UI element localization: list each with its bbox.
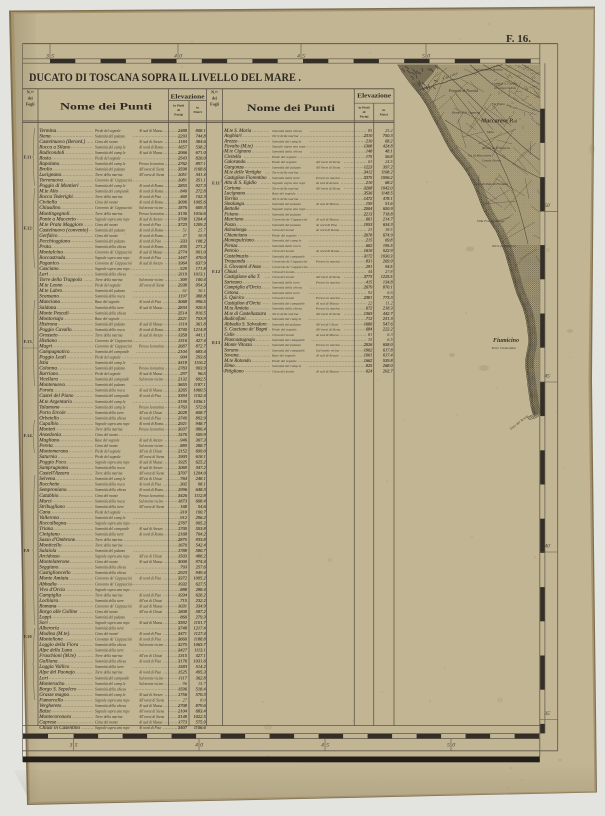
svg-text:628.2: 628.2 — [196, 592, 207, 597]
svg-text:Sommità della torre: Sommità della torre — [95, 411, 124, 415]
svg-text:271.2: 271.2 — [196, 244, 207, 249]
svg-text:3037: 3037 — [178, 426, 188, 431]
svg-text:2774: 2774 — [178, 250, 188, 255]
svg-text:Metri: Metri — [194, 110, 202, 114]
svg-text:3068: 3068 — [178, 299, 188, 304]
svg-text:1060.5: 1060.5 — [193, 388, 206, 393]
svg-text:Cima del monte: Cima del monte — [95, 223, 118, 227]
svg-text:469: 469 — [180, 194, 188, 199]
svg-text:Al sud di Massa: Al sud di Massa — [315, 369, 339, 373]
svg-text:Sul monte vicino: Sul monte vicino — [139, 676, 163, 680]
svg-text:4: 4 — [297, 54, 300, 60]
svg-text:Sommità del camp.le: Sommità del camp.le — [95, 145, 126, 149]
svg-text:Elevazione: Elevazione — [357, 94, 391, 100]
svg-text:Pozzo: Pozzo — [223, 223, 236, 228]
svg-text:F.11: F.11 — [24, 155, 33, 160]
svg-text:Segnale sopra una rupe: Segnale sopra una rupe — [95, 461, 130, 465]
svg-text:1525: 1525 — [178, 670, 188, 675]
svg-text:Cima del monte: Cima del monte — [272, 228, 295, 232]
svg-text:1102.4: 1102.4 — [194, 393, 207, 398]
svg-text:570.3: 570.3 — [196, 692, 207, 697]
svg-text:3598: 3598 — [178, 167, 188, 172]
svg-text:Convento de' Cappuccini: Convento de' Cappuccini — [95, 262, 132, 266]
svg-text:Cima del monte: Cima del monte — [95, 234, 118, 238]
svg-text:F.13: F.13 — [212, 340, 221, 345]
svg-text:108.2: 108.2 — [196, 238, 207, 243]
svg-text:Torre della marina: Torre della marina — [95, 195, 123, 199]
svg-text:All'est di Chiusi: All'est di Chiusi — [138, 599, 162, 603]
svg-text:Sommità del palazzo: Sommità del palazzo — [272, 322, 301, 326]
svg-text:Convento de' Cappuccini: Convento de' Cappuccini — [95, 604, 132, 608]
svg-text:514.2: 514.2 — [196, 664, 207, 669]
svg-text:222.2: 222.2 — [383, 327, 394, 332]
svg-text:750.3: 750.3 — [383, 133, 393, 138]
svg-text:3000: 3000 — [178, 559, 188, 564]
svg-text:Pitigliano: Pitigliano — [223, 369, 244, 374]
svg-text:927.3: 927.3 — [196, 183, 207, 188]
svg-text:Al nord di Roma: Al nord di Roma — [138, 228, 163, 232]
svg-text:Al nord di Pisa: Al nord di Pisa — [138, 223, 161, 227]
svg-text:2488: 2488 — [178, 128, 188, 133]
svg-text:835: 835 — [180, 244, 188, 249]
svg-text:Trequanda: Trequanda — [224, 260, 246, 265]
svg-text:61: 61 — [183, 288, 188, 293]
svg-text:986.4: 986.4 — [196, 426, 207, 431]
svg-text:Al nord di Pisa: Al nord di Pisa — [138, 239, 161, 243]
svg-text:Segnale sopra una rupe: Segnale sopra una rupe — [95, 422, 130, 426]
svg-text:2762: 2762 — [178, 161, 188, 166]
svg-text:1873: 1873 — [178, 498, 188, 503]
svg-text:1204.4: 1204.4 — [193, 216, 206, 221]
svg-text:Sommità del camp.le: Sommità del camp.le — [95, 693, 126, 697]
svg-text:Torre di Palidoro: Torre di Palidoro — [492, 244, 516, 248]
svg-text:Sommità del camp.le: Sommità del camp.le — [272, 139, 302, 143]
svg-text:All'ovest di Siena: All'ovest di Siena — [315, 312, 341, 316]
svg-text:948.7: 948.7 — [196, 421, 207, 426]
svg-text:Al sud di Massa: Al sud di Massa — [315, 333, 339, 337]
svg-text:Piede del segnale: Piede del segnale — [271, 233, 297, 237]
svg-text:Torre della marina: Torre della marina — [95, 593, 123, 597]
svg-text:5: 5 — [447, 743, 450, 749]
svg-text:Tenuta di Primavera: Tenuta di Primavera — [482, 146, 510, 150]
svg-text:Torre Clementina: Torre Clementina — [492, 346, 517, 350]
svg-text:Sommità del palazzo: Sommità del palazzo — [95, 383, 125, 387]
svg-text:Segnale sopra una rupe: Segnale sopra una rupe — [95, 709, 130, 713]
svg-text:Al nord di Pisa: Al nord di Pisa — [138, 671, 161, 675]
svg-text:171.8: 171.8 — [196, 266, 207, 271]
svg-text:Sommità del palazzo: Sommità del palazzo — [95, 322, 125, 326]
svg-text:Sul monte vicino: Sul monte vicino — [139, 278, 163, 282]
svg-text:580.7: 580.7 — [196, 548, 207, 553]
svg-text:495.3: 495.3 — [196, 670, 207, 675]
svg-text:Piede del segnale: Piede del segnale — [271, 160, 297, 164]
svg-text:442.7: 442.7 — [383, 311, 394, 316]
svg-text:351.1: 351.1 — [196, 178, 206, 183]
svg-text:2066: 2066 — [178, 150, 188, 155]
svg-text:Torre della marina: Torre della marina — [272, 312, 299, 316]
svg-text:Sommità del palazzo: Sommità del palazzo — [95, 367, 125, 371]
svg-text:S. Casciano de' Bagni: S. Casciano de' Bagni — [224, 328, 268, 333]
svg-text:553.8: 553.8 — [196, 526, 207, 531]
svg-text:Civitella: Civitella — [224, 155, 241, 160]
svg-text:100.4: 100.4 — [196, 277, 207, 282]
svg-text:M.te Rotondo: M.te Rotondo — [223, 359, 251, 364]
svg-text:Al sud di Massa: Al sud di Massa — [138, 461, 163, 465]
svg-text:Sommità del palazzo: Sommità del palazzo — [95, 239, 125, 243]
svg-text:Al nord di Pisa: Al nord di Pisa — [138, 394, 161, 398]
svg-text:Sommità del camp.le: Sommità del camp.le — [95, 477, 126, 481]
svg-text:F.9: F.9 — [24, 548, 31, 553]
svg-text:933.8: 933.8 — [196, 537, 207, 542]
svg-text:96: 96 — [183, 681, 188, 686]
svg-text:Al nord di Pisa: Al nord di Pisa — [138, 483, 161, 487]
svg-text:Al nord di Roma: Al nord di Roma — [138, 184, 163, 188]
svg-text:All'ovest di Siena: All'ovest di Siena — [315, 160, 341, 164]
svg-text:F.13: F.13 — [24, 339, 33, 344]
svg-text:Via Piana: Via Piana — [492, 102, 505, 106]
svg-text:Sommità del palazzo: Sommità del palazzo — [272, 343, 301, 347]
svg-text:441.1: 441.1 — [196, 332, 206, 337]
svg-text:Al nord di Roma: Al nord di Roma — [138, 145, 163, 149]
svg-text:All'ovest di Siena: All'ovest di Siena — [315, 275, 341, 279]
svg-text:All'est di Chiusi: All'est di Chiusi — [138, 450, 162, 454]
svg-text:Presso la marina: Presso la marina — [138, 405, 164, 409]
svg-text:3412: 3412 — [364, 170, 373, 175]
svg-text:Cima del monte: Cima del monte — [95, 610, 118, 614]
svg-text:2543: 2543 — [178, 156, 188, 161]
svg-text:Cima del monte: Cima del monte — [95, 444, 118, 448]
svg-text:1503: 1503 — [178, 554, 188, 559]
svg-text:Sommità della torre: Sommità della torre — [95, 627, 124, 631]
svg-text:1108.2: 1108.2 — [381, 170, 393, 175]
svg-text:Segnale sopra una rupe: Segnale sopra una rupe — [95, 267, 130, 271]
svg-text:Sul monte vicino: Sul monte vicino — [139, 206, 163, 210]
svg-text:2152: 2152 — [178, 449, 188, 454]
svg-text:Al sud di Massa: Al sud di Massa — [138, 621, 163, 625]
svg-text:572.6: 572.6 — [196, 404, 207, 409]
svg-text:2783: 2783 — [178, 366, 188, 371]
svg-text:Segnale sopra una rupe: Segnale sopra una rupe — [272, 207, 306, 211]
svg-text:671.0: 671.0 — [196, 150, 207, 155]
svg-text:1358: 1358 — [178, 332, 188, 337]
svg-text:1570: 1570 — [178, 432, 188, 437]
svg-text:1788: 1788 — [178, 548, 188, 553]
svg-text:946: 946 — [180, 438, 188, 443]
svg-text:Sommità della torre: Sommità della torre — [272, 176, 300, 180]
svg-text:All'est di Chiusi: All'est di Chiusi — [138, 555, 162, 559]
svg-text:Sommità della chiesa: Sommità della chiesa — [95, 488, 126, 492]
svg-text:1204.0: 1204.0 — [193, 471, 206, 476]
svg-text:4: 4 — [195, 743, 198, 749]
svg-text:1081: 1081 — [178, 178, 187, 183]
svg-text:1217.4: 1217.4 — [193, 626, 206, 631]
svg-text:296.2: 296.2 — [196, 515, 207, 520]
svg-text:F.14: F.14 — [24, 433, 33, 438]
svg-text:Al sud di Massa: Al sud di Massa — [315, 301, 339, 305]
svg-text:2938: 2938 — [178, 283, 188, 288]
svg-text:Torre della marina: Torre della marina — [272, 171, 299, 175]
svg-text:Segnale sopra una rupe: Segnale sopra una rupe — [95, 726, 130, 730]
svg-text:Piede del segnale: Piede del segnale — [94, 455, 121, 459]
svg-text:684: 684 — [366, 327, 373, 332]
svg-text:Base del segnale: Base del segnale — [95, 439, 120, 443]
svg-text:Base del segnale: Base del segnale — [272, 354, 296, 358]
svg-text:Sommità del palazzo: Sommità del palazzo — [272, 213, 301, 217]
svg-text:Al sud di Arezzo: Al sud di Arezzo — [138, 262, 163, 266]
svg-text:Cima del monte: Cima del monte — [272, 249, 295, 253]
svg-text:3: 3 — [69, 743, 73, 749]
svg-text:Al sud di Arezzo: Al sud di Arezzo — [138, 439, 163, 443]
svg-text:764: 764 — [180, 476, 188, 481]
svg-text:539.8: 539.8 — [383, 358, 394, 363]
svg-text:3740: 3740 — [178, 327, 188, 332]
svg-text:715: 715 — [180, 598, 188, 603]
svg-text:Al nord di Roma: Al nord di Roma — [138, 488, 163, 492]
svg-text:Fogli: Fogli — [210, 102, 220, 107]
svg-text:All'ovest di Siena: All'ovest di Siena — [138, 173, 164, 177]
svg-text:69.8: 69.8 — [385, 238, 393, 243]
svg-text:Sommità del camp.le: Sommità del camp.le — [95, 184, 126, 188]
svg-text:Al nord di Pisa: Al nord di Pisa — [138, 256, 161, 260]
svg-text:Piede del segnale: Piede del segnale — [271, 328, 297, 332]
svg-text:Segnale sopra una rupe: Segnale sopra una rupe — [95, 256, 130, 260]
svg-text:Cortona: Cortona — [224, 186, 241, 191]
svg-text:744.8: 744.8 — [196, 133, 207, 138]
svg-text:Sommità del campanile: Sommità del campanile — [95, 190, 130, 194]
svg-text:Nome dei Punti: Nome dei Punti — [247, 104, 335, 114]
svg-text:333: 333 — [180, 238, 188, 243]
svg-text:488.2: 488.2 — [196, 554, 207, 559]
svg-text:1127.4: 1127.4 — [194, 631, 207, 636]
svg-text:1773: 1773 — [178, 720, 188, 725]
svg-text:Cima del monte: Cima del monte — [95, 721, 118, 725]
svg-text:1705: 1705 — [178, 526, 188, 531]
svg-text:808.1: 808.1 — [196, 128, 206, 133]
svg-text:Convento de' Cappuccini: Convento de' Cappuccini — [95, 345, 132, 349]
svg-text:872.7: 872.7 — [196, 344, 207, 349]
svg-text:Monte Vitozzo: Monte Vitozzo — [223, 343, 252, 348]
svg-text:Convento de' Cappuccini: Convento de' Cappuccini — [272, 218, 307, 222]
svg-text:1756: 1756 — [178, 692, 188, 697]
svg-text:Al nord di Pisa: Al nord di Pisa — [138, 638, 161, 642]
svg-text:Cima del monte: Cima del monte — [272, 270, 295, 274]
svg-text:Sommità del camp.le: Sommità del camp.le — [95, 682, 126, 686]
svg-text:1022.5: 1022.5 — [193, 714, 206, 719]
svg-text:Al sud di Arezzo: Al sud di Arezzo — [138, 527, 163, 531]
svg-text:3708: 3708 — [178, 216, 188, 221]
svg-text:288.7: 288.7 — [196, 443, 207, 448]
svg-text:1110.2: 1110.2 — [194, 360, 206, 365]
svg-text:Piede del segnale: Piede del segnale — [271, 359, 297, 363]
svg-text:Al sud di Arezzo: Al sud di Arezzo — [315, 181, 339, 185]
svg-text:3148: 3148 — [178, 714, 188, 719]
svg-text:1925: 1925 — [178, 460, 188, 465]
svg-text:Maccarese P.ol: Maccarese P.ol — [480, 119, 518, 125]
svg-text:1113.1: 1113.1 — [194, 648, 206, 653]
svg-text:1996: 1996 — [178, 487, 188, 492]
svg-text:Convento de' Cappuccini: Convento de' Cappuccini — [95, 206, 132, 210]
svg-text:Sommità della chiesa: Sommità della chiesa — [95, 704, 126, 708]
svg-text:Sommità del palazzo: Sommità del palazzo — [95, 615, 125, 619]
svg-text:518.4: 518.4 — [196, 686, 207, 691]
svg-text:Sommità del campanile: Sommità del campanile — [95, 676, 130, 680]
svg-text:Sommità della chiesa: Sommità della chiesa — [95, 687, 126, 691]
svg-text:All'ovest di Siena: All'ovest di Siena — [138, 284, 164, 288]
svg-text:di: di — [177, 108, 180, 112]
svg-text:V.a di Maccarese: V.a di Maccarese — [468, 154, 492, 158]
svg-text:Sommità del palazzo: Sommità del palazzo — [272, 202, 301, 206]
svg-text:All'ovest di Siena: All'ovest di Siena — [138, 455, 164, 459]
svg-text:683.4: 683.4 — [196, 708, 207, 713]
svg-text:879.6: 879.6 — [196, 703, 207, 708]
svg-text:Piede del segnale: Piede del segnale — [94, 450, 121, 454]
svg-text:650.9: 650.9 — [383, 206, 394, 211]
svg-text:Al sud di Massa: Al sud di Massa — [138, 306, 163, 310]
svg-text:529: 529 — [180, 266, 188, 271]
svg-text:Piede del segnale: Piede del segnale — [94, 284, 121, 288]
svg-text:Presso la marina: Presso la marina — [138, 427, 164, 431]
svg-text:625.2: 625.2 — [196, 460, 207, 465]
svg-text:3130: 3130 — [178, 211, 188, 216]
svg-text:Sommità del campanile: Sommità del campanile — [95, 378, 130, 382]
svg-text:3418: 3418 — [178, 360, 188, 365]
svg-text:Sommità della chiesa: Sommità della chiesa — [272, 307, 302, 311]
svg-text:3265: 3265 — [178, 388, 188, 393]
svg-text:F.10: F.10 — [24, 634, 33, 639]
svg-text:36.1: 36.1 — [198, 288, 206, 293]
svg-text:Al nord di Roma: Al nord di Roma — [138, 422, 163, 426]
svg-text:288.4: 288.4 — [196, 587, 207, 592]
svg-text:54.6: 54.6 — [198, 504, 207, 509]
svg-text:Al nord di Pisa: Al nord di Pisa — [315, 223, 337, 227]
svg-text:3275: 3275 — [178, 642, 188, 647]
svg-text:Presso la marina: Presso la marina — [138, 212, 164, 216]
svg-text:di: di — [363, 110, 366, 114]
svg-text:618.1: 618.1 — [196, 454, 206, 459]
svg-text:Al sud di Massa: Al sud di Massa — [138, 704, 163, 708]
svg-text:8.0: 8.0 — [200, 697, 206, 702]
svg-text:470.0: 470.0 — [196, 255, 207, 260]
svg-text:dei: dei — [212, 96, 218, 101]
svg-text:3773: 3773 — [364, 274, 373, 279]
svg-text:Al nord di Roma: Al nord di Roma — [315, 228, 339, 232]
svg-text:1005.6: 1005.6 — [193, 200, 206, 205]
svg-text:1184: 1184 — [178, 139, 187, 144]
svg-text:1063.7: 1063.7 — [193, 642, 206, 647]
svg-text:Castel di S. Giorgio: Castel di S. Giorgio — [492, 82, 518, 86]
svg-text:All'est di Chiusi: All'est di Chiusi — [315, 322, 338, 326]
svg-text:Presso la marina: Presso la marina — [138, 367, 164, 371]
svg-text:634.3: 634.3 — [383, 222, 393, 227]
svg-text:Sommità della rocca: Sommità della rocca — [95, 466, 125, 470]
svg-text:Sul monte vicino: Sul monte vicino — [139, 643, 163, 647]
svg-text:Sommità della torre: Sommità della torre — [95, 306, 124, 310]
svg-text:Sommità del palazzo: Sommità del palazzo — [95, 289, 125, 293]
svg-text:Bettolle: Bettolle — [224, 207, 240, 212]
svg-text:All'ovest di Siena: All'ovest di Siena — [138, 505, 164, 509]
svg-text:All'ovest di Siena: All'ovest di Siena — [138, 472, 164, 476]
svg-text:587.2: 587.2 — [196, 609, 207, 614]
svg-text:F.11: F.11 — [212, 181, 221, 186]
svg-text:2028: 2028 — [178, 410, 188, 415]
svg-text:2921: 2921 — [178, 421, 187, 426]
svg-text:Cima del monte: Cima del monte — [95, 494, 118, 498]
svg-text:889: 889 — [180, 443, 188, 448]
svg-text:892.9: 892.9 — [196, 415, 207, 420]
svg-text:1042.0: 1042.0 — [381, 185, 394, 190]
svg-text:Chiusi in Casentino: Chiusi in Casentino — [39, 725, 80, 731]
svg-text:Torre della marina: Torre della marina — [95, 715, 123, 719]
svg-text:Al nord di Pisa: Al nord di Pisa — [138, 660, 161, 664]
svg-text:1964: 1964 — [178, 261, 188, 266]
svg-text:Presso la marina: Presso la marina — [315, 260, 340, 264]
svg-text:974.4: 974.4 — [196, 559, 207, 564]
svg-text:Convento de' Cappuccini: Convento de' Cappuccini — [95, 577, 132, 581]
svg-text:56.8: 56.8 — [385, 154, 393, 159]
svg-text:Sommità della chiesa: Sommità della chiesa — [95, 311, 126, 315]
svg-text:1932: 1932 — [178, 581, 188, 586]
svg-text:Sul monte vicino: Sul monte vicino — [139, 444, 163, 448]
svg-text:Al nord di Roma: Al nord di Roma — [138, 234, 163, 238]
svg-text:637.9: 637.9 — [196, 261, 207, 266]
svg-text:Cima del monte: Cima del monte — [272, 296, 295, 300]
svg-text:Al nord di Pisa: Al nord di Pisa — [138, 726, 161, 730]
svg-text:Cima del monte: Cima del monte — [272, 333, 295, 337]
svg-text:All'est di Chiusi: All'est di Chiusi — [138, 477, 162, 481]
svg-text:1209.2: 1209.2 — [193, 222, 206, 227]
svg-text:Nome dei Punti: Nome dei Punti — [60, 103, 153, 113]
svg-text:1934: 1934 — [178, 592, 188, 597]
svg-text:Al nord di Roma: Al nord di Roma — [138, 190, 163, 194]
svg-text:Convento de' Cappuccini: Convento de' Cappuccini — [272, 260, 307, 264]
svg-text:215: 215 — [366, 238, 373, 243]
svg-text:38.8: 38.8 — [198, 233, 207, 238]
svg-text:Al nord di Pisa: Al nord di Pisa — [138, 300, 161, 304]
svg-text:309: 309 — [180, 277, 188, 282]
svg-text:658.7: 658.7 — [196, 410, 207, 415]
svg-text:6.6: 6.6 — [387, 290, 393, 295]
svg-text:627.5: 627.5 — [196, 581, 207, 586]
svg-text:Base del segnale: Base del segnale — [95, 300, 120, 304]
svg-text:202.7: 202.7 — [383, 368, 394, 373]
svg-text:2321: 2321 — [178, 316, 187, 321]
svg-text:F.12: F.12 — [212, 269, 221, 274]
svg-text:Piede del segnale: Piede del segnale — [271, 155, 297, 159]
svg-text:Sommità della torre: Sommità della torre — [272, 281, 300, 285]
svg-text:Torre della marina: Torre della marina — [272, 134, 299, 138]
svg-text:1112.8: 1112.8 — [194, 493, 206, 498]
svg-text:1031: 1031 — [178, 603, 187, 608]
svg-text:Sul monte vicino: Sul monte vicino — [139, 499, 163, 503]
svg-text:3748: 3748 — [178, 626, 188, 631]
svg-text:All'ovest di Siena: All'ovest di Siena — [138, 709, 164, 713]
svg-text:Sommità della chiesa: Sommità della chiesa — [95, 566, 126, 570]
svg-text:1106.6: 1106.6 — [194, 725, 207, 730]
svg-text:954.3: 954.3 — [196, 283, 207, 288]
svg-text:3707: 3707 — [178, 471, 188, 476]
svg-text:Presso la marina: Presso la marina — [315, 176, 340, 180]
svg-text:Sommità del campanile: Sommità del campanile — [95, 350, 130, 354]
svg-text:Sommità della rocca: Sommità della rocca — [95, 389, 125, 393]
svg-text:1657: 1657 — [178, 144, 188, 149]
svg-text:Presso la marina: Presso la marina — [315, 307, 340, 311]
svg-text:920.5: 920.5 — [196, 305, 207, 310]
svg-text:Sommità della rocca: Sommità della rocca — [95, 483, 125, 487]
svg-text:3471: 3471 — [178, 631, 187, 636]
svg-text:Montepulciano: Montepulciano — [223, 239, 254, 244]
svg-text:Fiumicino: Fiumicino — [493, 338, 519, 344]
svg-text:Sommità del campanile: Sommità del campanile — [272, 338, 305, 342]
